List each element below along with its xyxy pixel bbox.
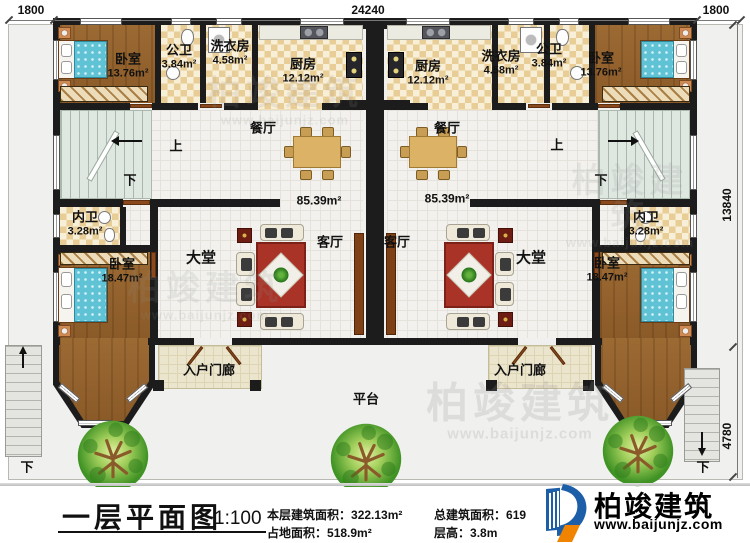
label-inner-bath-right: 内卫3.28m²: [629, 211, 664, 238]
window: [628, 18, 670, 25]
wall-interior: [620, 103, 697, 110]
bed-quilt: [641, 41, 674, 78]
label-kitchen-left: 厨房12.12m²: [283, 58, 324, 85]
window: [690, 40, 697, 80]
dining-chair: [322, 170, 334, 180]
wall-interior: [120, 207, 126, 245]
label-public-bath-right: 公卫3.84m²: [532, 43, 567, 70]
kitchen-sink: [422, 26, 450, 39]
nightstand: [58, 27, 71, 39]
stair-arrow: [698, 448, 706, 456]
side-table: [237, 312, 252, 327]
wall-interior: [470, 199, 600, 207]
wall-interior: [53, 103, 130, 110]
door-inner-bath: [123, 200, 150, 205]
label-porch-left: 入户门廊: [183, 364, 235, 379]
wall-interior: [627, 199, 697, 207]
stair-direction-line: [118, 140, 142, 142]
sofa: [260, 224, 304, 241]
bed-quilt: [641, 268, 674, 322]
wall-interior: [200, 25, 206, 103]
plan-title: 一层平面图: [62, 496, 222, 536]
wall-interior: [150, 199, 280, 207]
toilet-icon: [104, 228, 115, 242]
door-inner-bath: [600, 200, 627, 205]
label-stair-up-right: 上: [550, 139, 563, 154]
window: [559, 18, 579, 25]
sofa: [446, 313, 490, 330]
label-platform: 平台: [353, 393, 379, 408]
stat-floor-area: 本层建筑面积：322.13m²: [267, 506, 402, 523]
wall-center-cap: [340, 100, 410, 110]
bed-pillow: [61, 44, 72, 57]
tv-wall: [354, 233, 364, 335]
door: [528, 104, 550, 108]
dim-right-upper: 13840: [720, 188, 734, 221]
floorplan-canvas: 1800 24240 1800 13840 4780 卧室13.76m² 公卫3…: [0, 0, 750, 543]
dining-chair: [300, 170, 312, 180]
dim-top-right: 1800: [703, 3, 730, 17]
label-stair-down-right: 下: [594, 174, 607, 189]
dimension-line-right: [737, 22, 738, 478]
window: [690, 135, 697, 190]
title-underline: [58, 531, 266, 533]
plant-icon: [462, 268, 477, 283]
label-stair-down-left: 下: [123, 174, 136, 189]
stair-direction-line: [608, 140, 632, 142]
armchair: [495, 252, 514, 276]
bed-pillow: [61, 294, 72, 309]
kitchen-sink: [300, 26, 328, 39]
stat-total-area: 总建筑面积：619: [434, 506, 526, 523]
label-unit-area-left: 85.39m²: [297, 194, 342, 207]
label-outdoor-down-left: 下: [20, 461, 33, 476]
dim-top-left: 1800: [18, 3, 45, 17]
dim-right-lower: 4780: [720, 423, 734, 450]
stair-direction-line: [701, 432, 703, 448]
stat-floor-height: 层高：3.8m: [434, 524, 497, 541]
bed-quilt: [74, 41, 107, 78]
wall-interior: [53, 245, 158, 252]
stair-arrow: [631, 136, 639, 146]
stair-arrow: [111, 136, 119, 146]
bed-pillow: [676, 44, 687, 57]
armchair: [236, 282, 255, 306]
wall-interior: [224, 103, 258, 110]
porch-post: [486, 380, 497, 391]
wall-interior: [152, 103, 198, 110]
plan-scale: 1:100: [214, 508, 262, 530]
bed-pillow: [676, 294, 687, 309]
window: [508, 18, 534, 25]
wall-center: [366, 18, 384, 345]
rug: [444, 242, 494, 308]
window: [300, 18, 344, 25]
window: [53, 214, 60, 238]
bed-pillow: [676, 272, 687, 287]
stat-land-area: 占地面积：518.9m²: [267, 524, 372, 541]
sofa: [260, 313, 304, 330]
dining-table: [409, 136, 457, 168]
brand-url: www.baijunjz.com: [594, 516, 723, 532]
dim-top-center: 24240: [351, 3, 384, 17]
wardrobe: [60, 86, 148, 102]
label-bedroom-bottom-left: 卧室18.47m²: [102, 258, 143, 285]
label-hall-right: 大堂: [516, 251, 546, 268]
wall-interior: [155, 25, 161, 103]
door: [200, 104, 222, 108]
label-living-left: 客厅: [317, 236, 343, 251]
bed-pillow: [61, 61, 72, 74]
side-table: [237, 228, 252, 243]
door: [130, 104, 152, 108]
bed-pillow: [61, 272, 72, 287]
label-laundry-left: 洗衣房4.58m²: [210, 40, 249, 67]
label-inner-bath-left: 内卫3.28m²: [68, 211, 103, 238]
label-dining-right: 餐厅: [434, 122, 460, 137]
wall-interior: [252, 25, 258, 103]
label-bedroom-top-right: 卧室13.76m²: [581, 52, 622, 79]
porch-post: [153, 380, 164, 391]
rug: [256, 242, 306, 308]
side-table: [498, 312, 513, 327]
dining-table: [293, 136, 341, 168]
window: [406, 18, 450, 25]
stove-icon: [346, 52, 362, 78]
label-living-right: 客厅: [384, 236, 410, 251]
stove-icon: [388, 52, 404, 78]
dining-chair: [416, 170, 428, 180]
label-hall-left: 大堂: [186, 251, 216, 268]
title-block: 一层平面图 1:100 本层建筑面积：322.13m² 占地面积：518.9m²…: [0, 487, 750, 543]
wall-interior: [492, 103, 526, 110]
wall-interior: [53, 199, 123, 207]
stair-arrow: [19, 346, 27, 354]
porch-post: [250, 380, 261, 391]
label-porch-right: 入户门廊: [494, 364, 546, 379]
wall-interior: [592, 245, 697, 252]
label-outdoor-down-right: 下: [696, 461, 709, 476]
label-unit-area-right: 85.39m²: [425, 192, 470, 205]
dining-chair: [438, 170, 450, 180]
label-laundry-right: 洗衣房4.58m²: [481, 50, 520, 77]
label-public-bath-left: 公卫3.84m²: [162, 44, 197, 71]
side-table: [498, 228, 513, 243]
dimension-tick: [737, 16, 745, 24]
tree: [601, 414, 675, 488]
label-stair-up-left: 上: [169, 140, 182, 155]
armchair: [236, 252, 255, 276]
nightstand: [679, 27, 692, 39]
door-bedroom: [151, 252, 156, 278]
porch-post: [583, 380, 594, 391]
bed-pillow: [676, 61, 687, 74]
dining-chair: [341, 146, 351, 158]
label-kitchen-right: 厨房12.12m²: [408, 60, 449, 87]
door: [598, 104, 620, 108]
nightstand: [679, 325, 692, 337]
window: [80, 18, 122, 25]
window: [171, 18, 191, 25]
tree: [76, 419, 150, 493]
sofa: [446, 224, 490, 241]
window: [690, 214, 697, 238]
label-bedroom-top-left: 卧室13.76m²: [108, 53, 149, 80]
label-bedroom-bottom-right: 卧室18.47m²: [587, 257, 628, 284]
wardrobe: [602, 86, 690, 102]
window: [690, 272, 697, 322]
label-dining-left: 餐厅: [250, 122, 276, 137]
wall-interior: [552, 103, 598, 110]
stair-direction-line: [22, 352, 24, 368]
window: [53, 135, 60, 190]
brand-logo-icon: [534, 481, 592, 543]
plant-icon: [274, 268, 289, 283]
window: [216, 18, 242, 25]
dining-chair: [457, 146, 467, 158]
nightstand: [58, 325, 71, 337]
armchair: [495, 282, 514, 306]
